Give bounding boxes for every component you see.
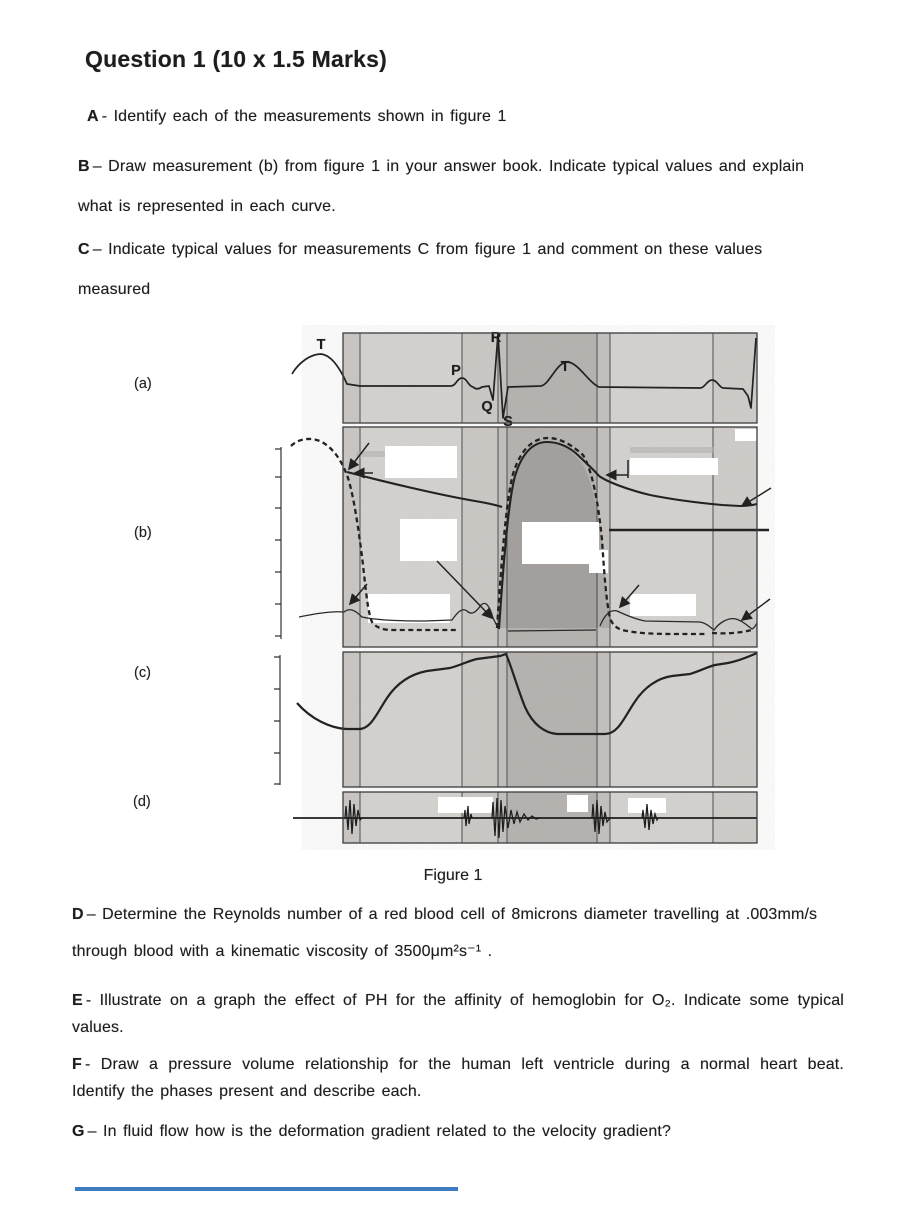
part-c-line1: C– Indicate typical values for measureme…	[78, 241, 762, 259]
part-f-line1: F- Draw a pressure volume relationship f…	[72, 1056, 844, 1074]
part-e-line1: E- Illustrate on a graph the effect of P…	[72, 992, 844, 1010]
part-a-letter: A	[87, 108, 99, 125]
ecg-label-q: Q	[481, 399, 492, 415]
volume-y-axis	[274, 655, 280, 785]
part-e-letter: E	[72, 992, 83, 1009]
part-a-text: - Identify each of the measurements show…	[102, 108, 507, 125]
part-b-text1: – Draw measurement (b) from figure 1 in …	[93, 158, 805, 175]
ecg-label-t: T	[561, 359, 570, 375]
part-b-letter: B	[78, 158, 90, 175]
part-d-text1: – Determine the Reynolds number of a red…	[87, 906, 817, 923]
part-e-text1: - Illustrate on a graph the effect of PH…	[86, 992, 844, 1009]
part-c-letter: C	[78, 241, 90, 258]
part-a: A- Identify each of the measurements sho…	[87, 108, 507, 126]
ecg-label-p: P	[451, 363, 461, 379]
figure-1-wiggers-diagram: T P R Q S T	[255, 325, 775, 850]
figure-panel-label-d: (d)	[133, 794, 151, 810]
part-f-letter: F	[72, 1056, 82, 1073]
part-d-letter: D	[72, 906, 84, 923]
part-f-line2: Identify the phases present and describe…	[72, 1083, 421, 1101]
footer-blue-rule	[75, 1187, 458, 1191]
part-g: G– In fluid flow how is the deformation …	[72, 1123, 671, 1141]
part-e-line2: values.	[72, 1019, 124, 1037]
figure-panel-label-a: (a)	[134, 376, 152, 392]
part-g-letter: G	[72, 1123, 85, 1140]
page-title: Question 1 (10 x 1.5 Marks)	[85, 46, 387, 73]
part-d-line1: D– Determine the Reynolds number of a re…	[72, 906, 817, 924]
pressure-y-axis	[275, 447, 281, 639]
part-g-text: – In fluid flow how is the deformation g…	[88, 1123, 671, 1140]
part-f-text1: - Draw a pressure volume relationship fo…	[85, 1056, 844, 1073]
figure-caption: Figure 1	[0, 867, 906, 885]
ecg-label-t-prev: T	[317, 337, 326, 353]
exam-page: Question 1 (10 x 1.5 Marks) A- Identify …	[0, 0, 906, 1219]
scan-noise	[343, 333, 757, 843]
part-c-text1: – Indicate typical values for measuremen…	[93, 241, 763, 258]
figure-panel-label-c: (c)	[134, 665, 151, 681]
figure-panel-label-b: (b)	[134, 525, 152, 541]
part-b-line1: B– Draw measurement (b) from figure 1 in…	[78, 158, 804, 176]
part-b-line2: what is represented in each curve.	[78, 198, 336, 216]
part-d-line2: through blood with a kinematic viscosity…	[72, 941, 492, 961]
part-c-line2: measured	[78, 281, 150, 299]
